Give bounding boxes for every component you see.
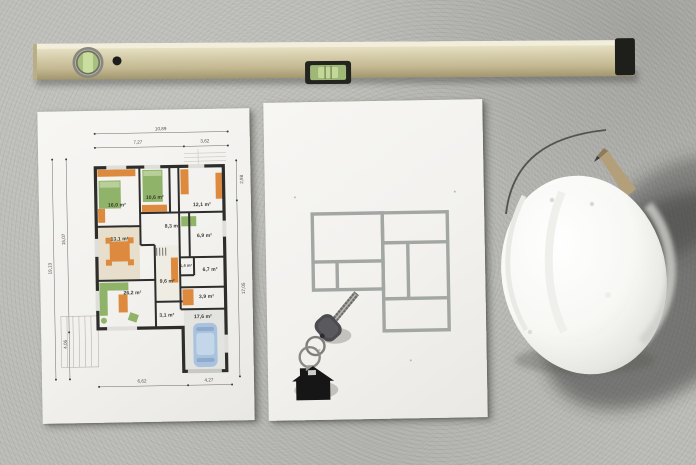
level-horizontal-vial: [305, 61, 351, 84]
level-hole: [112, 56, 121, 65]
level-end-cap: [615, 38, 635, 75]
objects-layer: [0, 0, 696, 465]
construction-flatlay-scene: 10,89 7,27 3,62 19,13 15,07 4,06 2,98 17…: [0, 0, 696, 465]
spirit-level: [33, 38, 638, 86]
level-circular-vial: [72, 47, 103, 78]
